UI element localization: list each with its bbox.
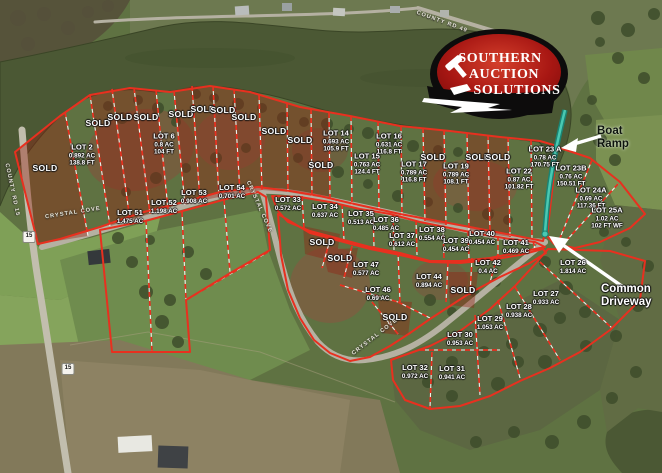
lot-label-lot-54: LOT 540.701 AC	[219, 184, 245, 200]
lot-name: LOT 27	[533, 290, 559, 299]
lot-acres: 0.454 AC	[469, 239, 495, 246]
sold-label-17: SOLD	[450, 285, 475, 295]
boat-ramp-line1: Boat	[597, 125, 629, 138]
road-label-4: CRYSTAL COVE	[245, 180, 273, 234]
lot-name: LOT 35	[348, 210, 374, 219]
lot-label-lot-15: LOT 150.763 AC124.4 FT	[354, 153, 380, 176]
lot-label-lot-14: LOT 140.693 AC105.9 FT	[323, 130, 349, 153]
lot-name: LOT 44	[416, 273, 442, 282]
lot-acres: 0.87 AC	[505, 176, 534, 183]
lot-acres: 1.02 AC	[591, 215, 623, 222]
lot-name: LOT 14	[323, 130, 349, 139]
lot-acres: 0.554 AC	[419, 235, 445, 242]
lot-acres: 0.941 AC	[439, 374, 465, 381]
lot-acres: 0.892 AC	[69, 152, 95, 159]
lot-name: LOT 34	[312, 203, 338, 212]
lot-acres: 0.933 AC	[533, 299, 559, 306]
lot-label-lot-23-a: LOT 23 A0.78 AC170.75 FT	[528, 146, 561, 169]
lot-label-lot-25a: LOT 25A1.02 AC102 FT WF	[591, 207, 623, 230]
sold-label-12: SOLD	[420, 152, 445, 162]
lot-acres: 0.894 AC	[416, 282, 442, 289]
lot-label-lot-51: LOT 511.475 AC	[117, 209, 143, 225]
lot-name: LOT 19	[443, 163, 469, 172]
lot-frontage: 124.4 FT	[354, 168, 380, 175]
lot-label-lot-30: LOT 300.953 AC	[447, 331, 473, 347]
sold-label-15: SOLD	[309, 237, 334, 247]
lot-acres: 1.198 AC	[151, 208, 177, 215]
lot-label-lot-24a: LOT 24A0.69 AC117.36 FT	[575, 187, 606, 210]
road-label-5: CRYSTAL COVE	[351, 317, 399, 356]
lot-name: LOT 30	[447, 331, 473, 340]
lot-frontage: 116.8 FT	[401, 176, 427, 183]
lot-name: LOT 53	[181, 189, 207, 198]
lot-label-lot-22: LOT 220.87 AC101.82 FT	[505, 168, 534, 191]
lot-label-lot-42: LOT 420.4 AC	[475, 259, 501, 275]
lot-label-lot-38: LOT 380.554 AC	[419, 226, 445, 242]
lot-name: LOT 41	[503, 239, 529, 248]
lot-acres: 0.577 AC	[353, 270, 379, 277]
lot-acres: 0.612 AC	[389, 241, 415, 248]
label-layer: LOT 20.892 AC138.8 FTLOT 60.8 AC104 FTLO…	[0, 0, 662, 473]
lot-name: LOT 33	[275, 196, 301, 205]
lot-acres: 0.701 AC	[219, 193, 245, 200]
lot-name: LOT 32	[402, 364, 428, 373]
lot-name: LOT 47	[353, 261, 379, 270]
lot-name: LOT 29	[477, 315, 503, 324]
lot-name: LOT 23B	[555, 165, 586, 174]
lot-acres: 0.69 AC	[575, 195, 606, 202]
lot-name: LOT 16	[376, 133, 402, 142]
lot-label-lot-32: LOT 320.972 AC	[402, 364, 428, 380]
lot-name: LOT 51	[117, 209, 143, 218]
lot-acres: 0.76 AC	[555, 173, 586, 180]
sold-label-3: SOLD	[107, 112, 132, 122]
sold-label-8: SOLD	[231, 112, 256, 122]
lot-acres: 0.631 AC	[376, 141, 402, 148]
lot-label-lot-53: LOT 530.908 AC	[181, 189, 207, 205]
lot-acres: 0.4 AC	[475, 268, 501, 275]
lot-acres: 0.972 AC	[402, 373, 428, 380]
lot-acres: 0.469 AC	[503, 248, 529, 255]
sold-label-11: SOLD	[308, 160, 333, 170]
lot-label-lot-39: LOT 390.454 AC	[443, 237, 469, 253]
sold-label-10: SOLD	[287, 135, 312, 145]
lot-label-lot-6: LOT 60.8 AC104 FT	[153, 133, 175, 156]
lot-acres: 0.763 AC	[354, 161, 380, 168]
sold-label-1: SOLD	[32, 163, 57, 173]
lot-label-lot-37: LOT 370.612 AC	[389, 232, 415, 248]
common-driveway-label: Common Driveway	[601, 283, 652, 308]
lot-name: LOT 15	[354, 153, 380, 162]
lot-name: LOT 37	[389, 232, 415, 241]
lot-acres: 1.475 AC	[117, 218, 143, 225]
sold-label-14: SOLD	[485, 152, 510, 162]
lot-frontage: 102 FT WF	[591, 222, 623, 229]
lot-acres: 0.513 AC	[348, 219, 374, 226]
lot-acres: 0.485 AC	[373, 225, 399, 232]
lot-name: LOT 54	[219, 184, 245, 193]
lot-label-lot-23b: LOT 23B0.76 AC150.51 FT	[555, 165, 586, 188]
common-driveway-line2: Driveway	[601, 296, 652, 309]
route-shield-2: 15	[62, 363, 75, 375]
lot-label-lot-35: LOT 350.513 AC	[348, 210, 374, 226]
lot-label-lot-2: LOT 20.892 AC138.8 FT	[69, 144, 95, 167]
lot-label-lot-33: LOT 330.572 AC	[275, 196, 301, 212]
lot-name: LOT 38	[419, 226, 445, 235]
lot-name: LOT 36	[373, 216, 399, 225]
lot-label-lot-29: LOT 291.053 AC	[477, 315, 503, 331]
lot-frontage: 150.51 FT	[555, 180, 586, 187]
lot-acres: 1.814 AC	[560, 268, 586, 275]
lot-frontage: 108.1 FT	[443, 178, 469, 185]
sold-label-16: SOLD	[327, 253, 352, 263]
lot-acres: 0.8 AC	[153, 141, 175, 148]
lot-name: LOT 24A	[575, 187, 606, 196]
lot-label-lot-28: LOT 280.938 AC	[506, 303, 532, 319]
lot-name: LOT 42	[475, 259, 501, 268]
lot-frontage: 105.9 FT	[323, 145, 349, 152]
lot-name: LOT 39	[443, 237, 469, 246]
lot-label-lot-17: LOT 170.789 AC116.8 FT	[401, 161, 427, 184]
route-shield-1: 15	[23, 231, 36, 243]
lot-label-lot-34: LOT 340.637 AC	[312, 203, 338, 219]
lot-name: LOT 28	[506, 303, 532, 312]
lot-frontage: 101.82 FT	[505, 183, 534, 190]
lot-label-lot-31: LOT 310.941 AC	[439, 365, 465, 381]
lot-label-lot-26: LOT 261.814 AC	[560, 259, 586, 275]
lot-name: LOT 52	[151, 199, 177, 208]
lot-label-lot-46: LOT 460.69 AC	[365, 286, 391, 302]
lot-label-lot-19: LOT 190.789 AC108.1 FT	[443, 163, 469, 186]
road-label-1: COUNTY RD 15	[3, 163, 20, 217]
sold-label-4: SOLD	[133, 112, 158, 122]
lot-acres: 0.637 AC	[312, 212, 338, 219]
lot-acres: 1.053 AC	[477, 324, 503, 331]
road-label-3: CRYSTAL COVE	[45, 206, 102, 221]
lot-frontage: 117.36 FT	[575, 202, 606, 209]
lot-acres: 0.953 AC	[447, 340, 473, 347]
lot-label-lot-27: LOT 270.933 AC	[533, 290, 559, 306]
lot-name: LOT 26	[560, 259, 586, 268]
lot-name: LOT 31	[439, 365, 465, 374]
lot-label-lot-52: LOT 521.198 AC	[151, 199, 177, 215]
lot-name: LOT 2	[69, 144, 95, 153]
boat-ramp-line2: Ramp	[597, 138, 629, 151]
lot-name: LOT 40	[469, 230, 495, 239]
lot-acres: 0.789 AC	[443, 171, 469, 178]
road-label-2: COUNTY RD 49	[416, 10, 469, 34]
lot-frontage: 138.8 FT	[69, 159, 95, 166]
lot-name: LOT 6	[153, 133, 175, 142]
lot-name: LOT 22	[505, 168, 534, 177]
common-driveway-line1: Common	[601, 283, 652, 296]
lot-acres: 0.908 AC	[181, 198, 207, 205]
lot-label-lot-44: LOT 440.894 AC	[416, 273, 442, 289]
lot-label-lot-36: LOT 360.485 AC	[373, 216, 399, 232]
boat-ramp-label: Boat Ramp	[597, 125, 629, 150]
lot-label-lot-40: LOT 400.454 AC	[469, 230, 495, 246]
lot-acres: 0.938 AC	[506, 312, 532, 319]
lot-name: LOT 46	[365, 286, 391, 295]
lot-label-lot-41: LOT 410.469 AC	[503, 239, 529, 255]
lot-name: LOT 25A	[591, 207, 623, 216]
lot-frontage: 170.75 FT	[528, 161, 561, 168]
lot-frontage: 104 FT	[153, 148, 175, 155]
auction-lot-map: SOUTHERN AUCTION SOLUTIONS LOT 20.892 AC…	[0, 0, 662, 473]
lot-frontage: 116.8 FT	[376, 148, 402, 155]
sold-label-9: SOLD	[261, 126, 286, 136]
lot-acres: 0.789 AC	[401, 169, 427, 176]
lot-acres: 0.454 AC	[443, 246, 469, 253]
lot-name: LOT 23 A	[528, 146, 561, 155]
lot-acres: 0.78 AC	[528, 154, 561, 161]
lot-acres: 0.693 AC	[323, 138, 349, 145]
lot-label-lot-16: LOT 160.631 AC116.8 FT	[376, 133, 402, 156]
lot-acres: 0.572 AC	[275, 205, 301, 212]
lot-label-lot-47: LOT 470.577 AC	[353, 261, 379, 277]
lot-acres: 0.69 AC	[365, 295, 391, 302]
